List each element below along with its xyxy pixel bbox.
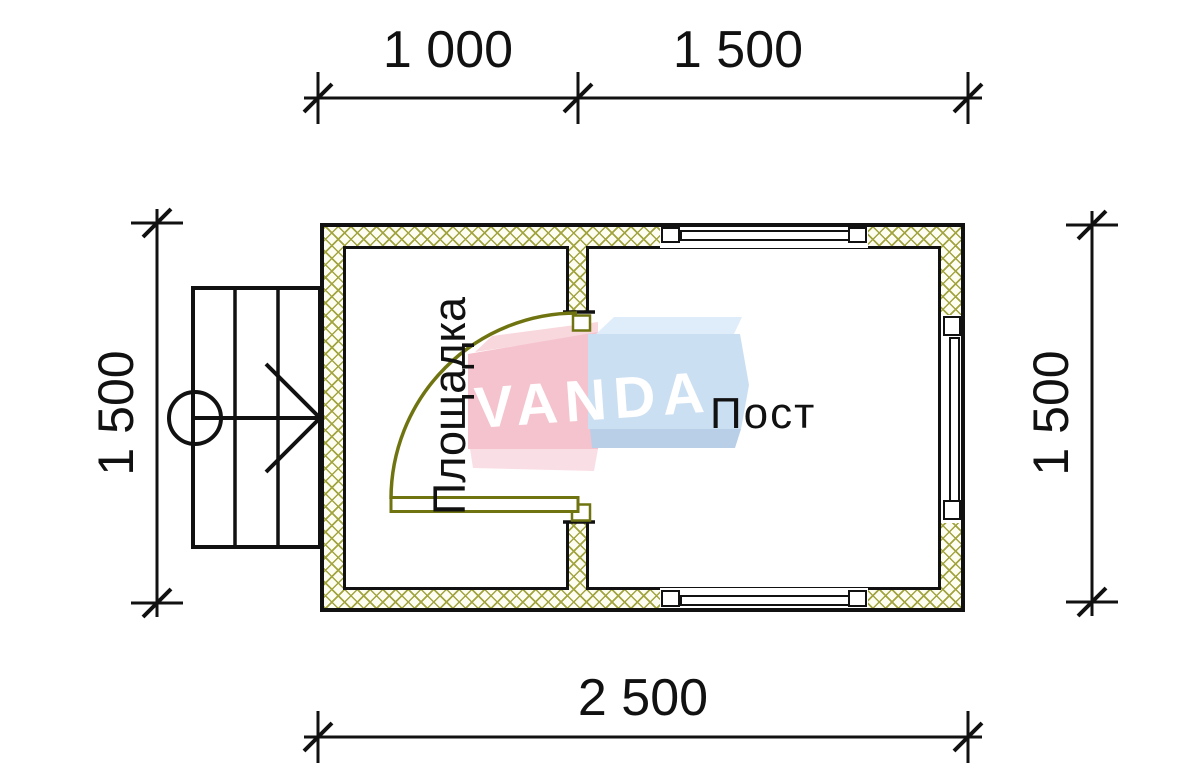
dim-label-top-left: 1 000 [348,24,548,76]
room-label-ploshchadka: Площадка [427,266,477,546]
dim-label-top-right: 1 500 [638,24,838,76]
dim-label-bottom: 2 500 [543,672,743,724]
floor-plan-canvas: VANDA [0,0,1200,772]
window-right-jamb-top [943,316,961,336]
dimension-top [304,72,982,124]
room-label-post: Пост [710,392,816,436]
window-top-jamb-left [661,227,680,243]
window-bottom-frame [680,595,850,606]
dim-label-right: 1 500 [1026,303,1080,523]
window-bottom-jamb-left [661,590,680,607]
window-right-frame [949,337,960,503]
window-bottom-jamb-right [848,590,867,607]
window-right-jamb-bottom [943,500,961,520]
window-top-frame [680,230,850,241]
window-top-jamb-right [848,227,867,243]
dim-label-left: 1 500 [91,303,145,523]
door-opening [563,313,595,522]
entrance-steps [169,288,320,547]
stair-direction-start-circle [169,392,221,444]
